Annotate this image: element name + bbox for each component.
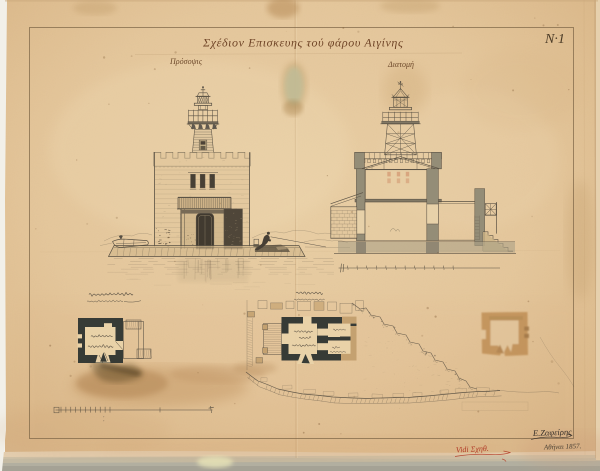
- svg-text:Διατομή: Διατομή: [387, 60, 414, 69]
- svg-text:Αθήναι 1857.: Αθήναι 1857.: [543, 442, 582, 451]
- svg-text:N·1: N·1: [544, 32, 565, 47]
- svg-text:Vidi Σχηθ.: Vidi Σχηθ.: [456, 444, 489, 455]
- svg-text:Ε.Ζαφείρης: Ε.Ζαφείρης: [532, 427, 573, 438]
- svg-text:Πρόσοψις: Πρόσοψις: [169, 57, 203, 66]
- svg-text:Σχέδιον Επισκευης τού φάρου Αι: Σχέδιον Επισκευης τού φάρου Αιγίνης: [202, 36, 403, 50]
